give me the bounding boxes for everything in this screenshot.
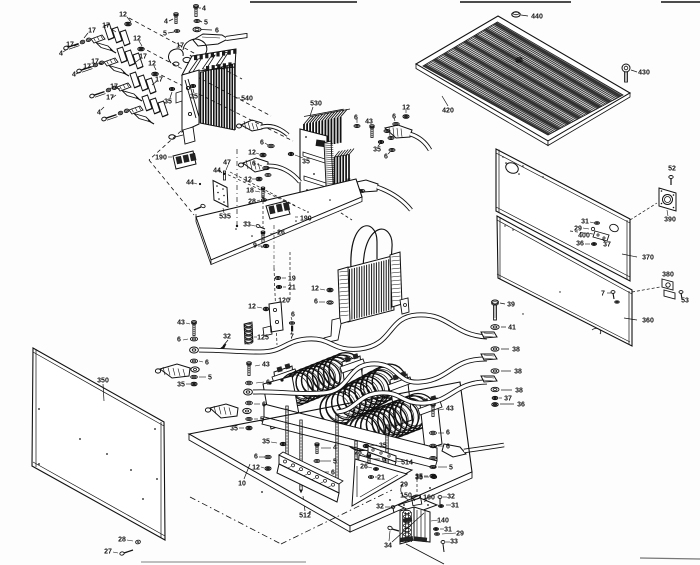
svg-text:34: 34 — [384, 543, 392, 550]
svg-text:43: 43 — [262, 362, 270, 369]
svg-text:35: 35 — [164, 99, 172, 106]
svg-text:36: 36 — [517, 402, 525, 409]
svg-text:7: 7 — [601, 291, 605, 298]
svg-text:37: 37 — [603, 242, 611, 249]
svg-text:535: 535 — [219, 214, 231, 221]
svg-text:35: 35 — [415, 475, 423, 482]
svg-text:28: 28 — [118, 537, 126, 544]
svg-text:38: 38 — [515, 388, 523, 395]
svg-text:190: 190 — [155, 155, 167, 162]
svg-text:28: 28 — [354, 450, 362, 457]
svg-text:530: 530 — [310, 101, 322, 108]
svg-text:6: 6 — [291, 312, 295, 319]
svg-text:4: 4 — [72, 72, 76, 79]
svg-text:27: 27 — [104, 549, 112, 556]
svg-text:43: 43 — [446, 406, 454, 413]
svg-text:6: 6 — [446, 430, 450, 437]
svg-text:28: 28 — [248, 199, 256, 206]
svg-text:125: 125 — [257, 335, 269, 342]
svg-text:35: 35 — [379, 443, 387, 450]
svg-text:6: 6 — [384, 154, 388, 161]
svg-text:18: 18 — [246, 188, 254, 195]
svg-text:160: 160 — [423, 495, 435, 502]
svg-text:12: 12 — [119, 12, 127, 19]
svg-text:39: 39 — [507, 302, 515, 309]
svg-text:32: 32 — [447, 494, 455, 501]
svg-text:6: 6 — [392, 114, 396, 121]
svg-text:540: 540 — [241, 96, 253, 103]
svg-text:17: 17 — [66, 42, 74, 49]
svg-text:4: 4 — [333, 445, 337, 452]
svg-text:35: 35 — [190, 94, 198, 101]
svg-text:26: 26 — [360, 464, 368, 471]
svg-text:370: 370 — [642, 255, 654, 262]
svg-text:9: 9 — [253, 243, 257, 250]
svg-text:31: 31 — [451, 503, 459, 510]
svg-text:5: 5 — [208, 375, 212, 382]
svg-text:32: 32 — [376, 504, 384, 511]
svg-text:36: 36 — [576, 241, 584, 248]
svg-text:17: 17 — [91, 59, 99, 66]
svg-text:17: 17 — [155, 77, 163, 84]
svg-text:26: 26 — [277, 230, 285, 237]
svg-text:21: 21 — [288, 285, 296, 292]
svg-text:6: 6 — [177, 337, 181, 344]
svg-text:43: 43 — [177, 320, 185, 327]
svg-text:17: 17 — [139, 54, 147, 61]
svg-text:12: 12 — [133, 36, 141, 43]
svg-text:6: 6 — [266, 380, 270, 387]
svg-text:52: 52 — [668, 166, 676, 173]
svg-text:6: 6 — [215, 28, 219, 35]
svg-text:33: 33 — [243, 222, 251, 229]
svg-text:32: 32 — [223, 334, 231, 341]
svg-text:4: 4 — [164, 19, 168, 26]
svg-text:12: 12 — [311, 286, 319, 293]
svg-text:35: 35 — [262, 439, 270, 446]
svg-text:41: 41 — [508, 325, 516, 332]
svg-text:360: 360 — [642, 318, 654, 325]
svg-text:350: 350 — [97, 378, 109, 385]
svg-text:5: 5 — [333, 459, 337, 466]
svg-text:38: 38 — [514, 369, 522, 376]
svg-text:5: 5 — [163, 31, 167, 38]
svg-text:35: 35 — [373, 147, 381, 154]
svg-text:19: 19 — [288, 276, 296, 283]
svg-text:37: 37 — [504, 396, 512, 403]
svg-text:4: 4 — [202, 6, 206, 13]
svg-text:190: 190 — [300, 216, 312, 223]
svg-text:400: 400 — [578, 233, 590, 240]
svg-text:440: 440 — [531, 14, 543, 21]
svg-text:35: 35 — [177, 382, 185, 389]
svg-text:17: 17 — [83, 64, 91, 71]
svg-text:31: 31 — [581, 219, 589, 226]
svg-text:6: 6 — [314, 299, 318, 306]
svg-text:6: 6 — [260, 140, 264, 147]
svg-text:514: 514 — [401, 460, 413, 467]
svg-text:6: 6 — [262, 402, 266, 409]
svg-text:29: 29 — [456, 531, 464, 538]
svg-text:5: 5 — [449, 465, 453, 472]
svg-text:38: 38 — [512, 347, 520, 354]
svg-text:35: 35 — [230, 426, 238, 433]
svg-text:31: 31 — [444, 527, 452, 534]
svg-text:5: 5 — [204, 20, 208, 27]
svg-text:29: 29 — [400, 482, 408, 489]
svg-text:140: 140 — [437, 518, 449, 525]
svg-text:10: 10 — [238, 481, 246, 488]
svg-text:35: 35 — [302, 159, 310, 166]
svg-text:17: 17 — [102, 23, 110, 30]
svg-text:12: 12 — [248, 150, 256, 157]
svg-text:6: 6 — [205, 360, 209, 367]
svg-text:47: 47 — [223, 160, 231, 167]
svg-text:4: 4 — [59, 51, 63, 58]
svg-text:44: 44 — [186, 180, 194, 187]
svg-text:17: 17 — [106, 95, 114, 102]
svg-text:512: 512 — [299, 513, 311, 520]
svg-text:17: 17 — [110, 84, 118, 91]
svg-text:6: 6 — [252, 161, 256, 168]
svg-text:12: 12 — [148, 61, 156, 68]
svg-text:6: 6 — [254, 454, 258, 461]
svg-text:17: 17 — [88, 28, 96, 35]
svg-text:4: 4 — [97, 110, 101, 117]
svg-text:420: 420 — [442, 108, 454, 115]
svg-text:430: 430 — [638, 70, 650, 77]
svg-text:33: 33 — [450, 539, 458, 546]
svg-text:6: 6 — [354, 115, 358, 122]
svg-text:21: 21 — [377, 475, 385, 482]
svg-text:53: 53 — [681, 298, 689, 305]
svg-text:380: 380 — [662, 272, 674, 279]
svg-text:390: 390 — [664, 217, 676, 224]
svg-text:12: 12 — [248, 304, 256, 311]
